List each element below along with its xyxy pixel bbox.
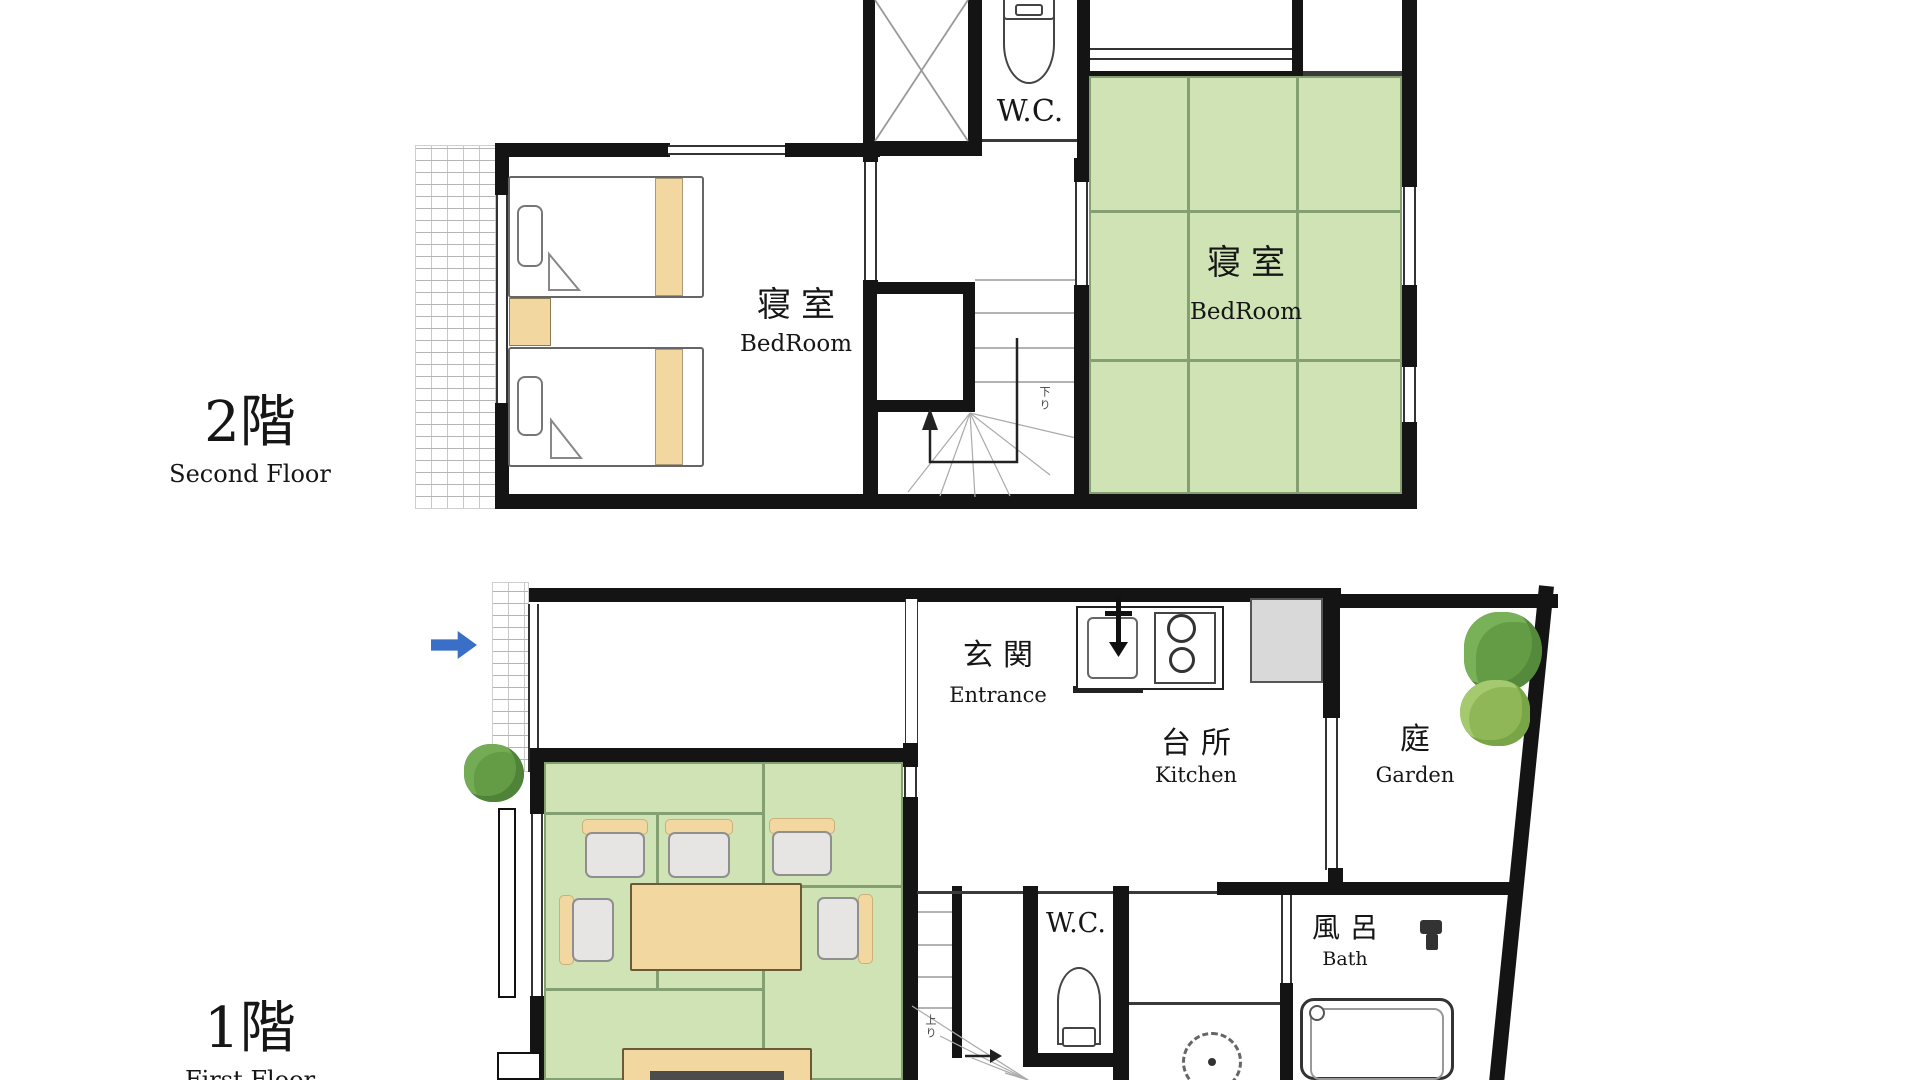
first-floor-title-en: First Floor xyxy=(150,1068,350,1080)
blanket-icon-2 xyxy=(655,349,683,465)
wall xyxy=(863,0,875,143)
window-2f-tatami-top xyxy=(1090,48,1292,60)
washing-machine-icon xyxy=(1182,1032,1242,1080)
garden-en-label: Garden xyxy=(1332,764,1498,786)
balcony-hatch-2f xyxy=(415,145,497,509)
refrigerator-icon xyxy=(1250,598,1323,683)
chair-icon xyxy=(668,832,730,878)
bedroom-east-en-label: BedRoom xyxy=(1150,300,1342,324)
wall-thin xyxy=(917,891,1217,894)
pillow-icon-2 xyxy=(517,376,543,436)
second-floor-title-jp: 2階 xyxy=(150,394,350,453)
wc-1f-label: W.C. xyxy=(1036,910,1116,938)
bath-faucet-icon xyxy=(1420,920,1442,934)
window-2f-bedroom-top xyxy=(668,145,787,155)
door-2f-bedroom xyxy=(864,162,877,280)
entrance-door xyxy=(528,604,539,772)
second-floor-title-en: Second Floor xyxy=(150,462,350,487)
toilet-seat-icon-1f xyxy=(1062,1027,1096,1047)
window-frame-living-left xyxy=(498,808,516,998)
wall-thin xyxy=(982,139,1077,142)
entrance-jp-label: 玄関 xyxy=(918,640,1078,672)
chair-icon xyxy=(817,897,859,960)
bathtub-inner-icon xyxy=(1310,1008,1444,1080)
bush-icon-entrance xyxy=(464,744,524,802)
partition-corridor-genkan xyxy=(905,599,918,745)
entrance-en-label: Entrance xyxy=(918,684,1078,706)
sink-icon xyxy=(1087,617,1138,679)
tree-icon-2 xyxy=(1460,680,1530,746)
tatami-line xyxy=(1089,210,1402,213)
bathtub-drain-icon xyxy=(1309,1005,1325,1021)
wc-2f-label: W.C. xyxy=(980,96,1080,128)
stairs-2f xyxy=(900,260,1095,500)
window-2f-bedroom-left xyxy=(496,195,508,403)
wall xyxy=(1023,1053,1129,1067)
first-floor-title-jp: 1階 xyxy=(150,1000,350,1059)
tatami-line xyxy=(1296,76,1299,494)
wall xyxy=(1074,158,1089,182)
blanket-icon-1 xyxy=(655,178,683,296)
closet-x-icon xyxy=(875,0,968,141)
door-living-east xyxy=(904,767,917,797)
stairs-1f xyxy=(910,886,1035,1080)
door-2f-tatami xyxy=(1075,182,1088,285)
wall xyxy=(530,762,544,814)
tatami-line xyxy=(1089,359,1402,362)
wall xyxy=(863,141,982,156)
wall xyxy=(1323,588,1340,718)
wall xyxy=(495,143,670,157)
window-2f-tatami-right-1 xyxy=(1403,187,1416,285)
wall xyxy=(1217,882,1515,895)
toilet-icon-2f xyxy=(1003,16,1055,84)
wall xyxy=(903,743,918,767)
wall xyxy=(529,588,1341,602)
bed-fold-icon-2 xyxy=(549,416,583,460)
tatami-line xyxy=(544,812,762,815)
window-living-left xyxy=(531,814,543,996)
kitchen-en-label: Kitchen xyxy=(1118,764,1274,786)
tatami-line xyxy=(1187,76,1190,494)
low-table-top-icon xyxy=(650,1071,784,1080)
faucet-icon xyxy=(1116,596,1121,643)
bath-faucet-icon-2 xyxy=(1426,934,1438,950)
nightstand-icon xyxy=(509,298,551,346)
entrance-arrow-icon xyxy=(431,631,477,659)
pillow-icon-1 xyxy=(517,205,543,267)
tatami-line xyxy=(544,988,762,991)
burner-icon-2 xyxy=(1169,647,1195,673)
door-bath xyxy=(1281,895,1292,983)
faucet-cross-icon xyxy=(1105,611,1132,616)
wall xyxy=(1402,285,1417,367)
bath-jp-label: 風呂 xyxy=(1294,913,1396,942)
wall xyxy=(530,748,918,762)
wall xyxy=(1340,594,1558,608)
burner-icon-1 xyxy=(1167,614,1196,643)
wall xyxy=(1402,0,1417,187)
wall xyxy=(1280,983,1293,1080)
bedroom-east-jp-label: 寝室 xyxy=(1150,246,1342,282)
cushion-icon xyxy=(858,894,873,964)
wall xyxy=(1074,285,1089,494)
dining-table-icon xyxy=(630,883,802,971)
chair-icon xyxy=(572,898,614,962)
wall xyxy=(495,143,509,195)
wall xyxy=(1402,422,1417,509)
bath-en-label: Bath xyxy=(1294,950,1396,970)
wall xyxy=(1292,0,1303,77)
wall-thin xyxy=(1129,1002,1280,1005)
window-frame-living-bottom xyxy=(497,1052,541,1080)
stairs-1f-note: 上り xyxy=(922,1014,938,1040)
chair-icon xyxy=(772,831,832,876)
bedroom-west-jp-label: 寝室 xyxy=(700,288,892,324)
bedroom-west-en-label: BedRoom xyxy=(700,332,892,356)
kitchen-jp-label: 台所 xyxy=(1118,728,1274,760)
tatami-floor-2f xyxy=(1089,76,1402,494)
toilet-seat-icon-2f xyxy=(1015,4,1043,16)
chair-icon xyxy=(585,832,645,878)
floor-plan-canvas: W.C. 下り xyxy=(0,0,1920,1080)
bed-fold-icon-1 xyxy=(547,250,581,292)
washing-machine-center-icon xyxy=(1208,1058,1216,1066)
window-2f-tatami-right-2 xyxy=(1403,367,1416,422)
stairs-2f-note: 下り xyxy=(1036,386,1052,412)
